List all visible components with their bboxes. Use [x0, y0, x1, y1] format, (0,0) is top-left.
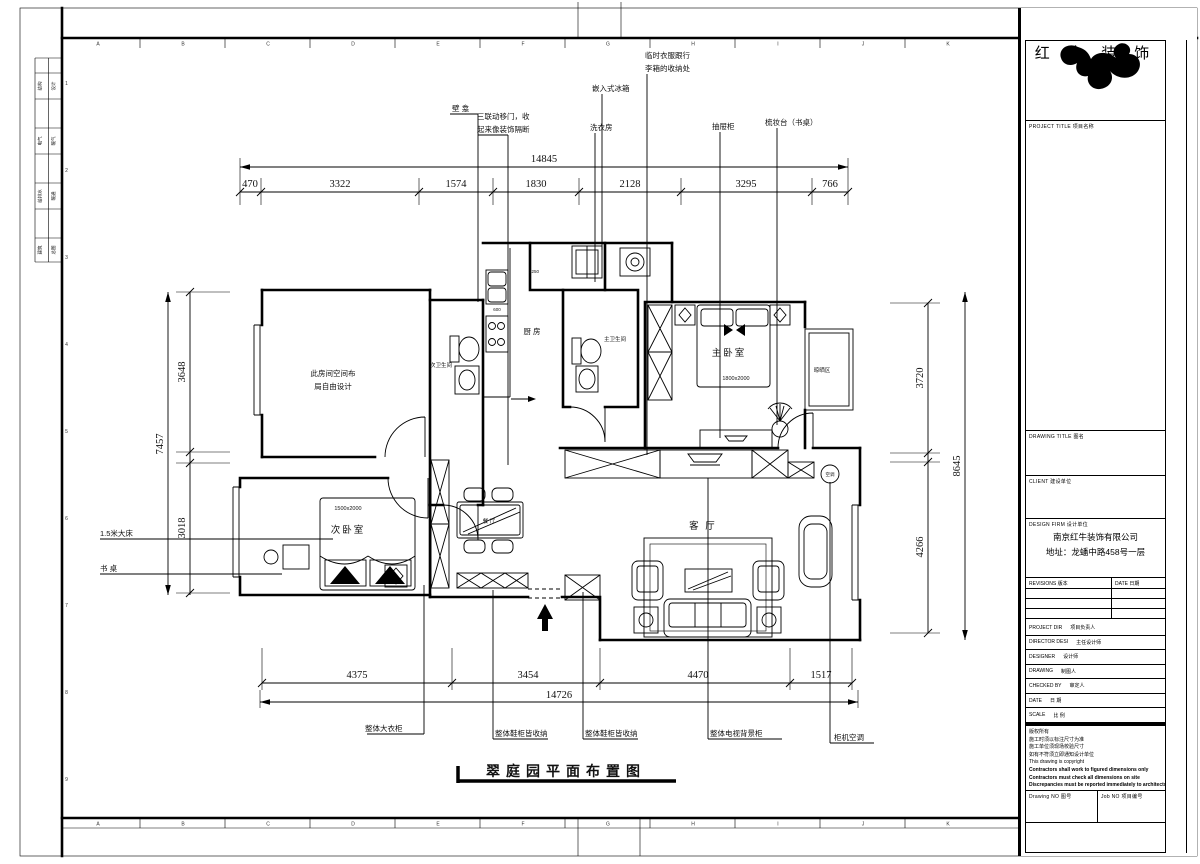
job-no-label: Job NO 项目编号: [1098, 791, 1165, 822]
staff-row: SCALE比 例: [1026, 708, 1165, 723]
svg-text:客 厅: 客 厅: [689, 520, 717, 532]
svg-text:设计: 设计: [50, 81, 57, 90]
svg-text:4375: 4375: [347, 670, 368, 681]
logo-section: 红 牛 装 饰: [1026, 41, 1165, 121]
svg-text:局自由设计: 局自由设计: [314, 381, 352, 391]
svg-text:1574: 1574: [446, 179, 468, 190]
svg-text:整体鞋柜皆收纳: 整体鞋柜皆收纳: [495, 728, 548, 738]
copyright-line: 版权所有: [1029, 729, 1165, 737]
svg-text:7: 7: [65, 603, 68, 609]
svg-text:梳妆台（书桌）: 梳妆台（书桌）: [765, 117, 818, 127]
svg-text:E: E: [436, 42, 440, 48]
svg-text:李箱的收纳处: 李箱的收纳处: [645, 63, 690, 73]
svg-text:此房间空间布: 此房间空间布: [311, 368, 356, 378]
svg-text:厨 房: 厨 房: [523, 326, 540, 336]
rednow-bull-logo: [1026, 41, 1165, 97]
svg-text:7457: 7457: [155, 434, 166, 455]
design-firm-name: 南京红牛装饰有限公司: [1026, 531, 1165, 543]
svg-text:I: I: [777, 822, 778, 828]
svg-text:H: H: [691, 822, 695, 828]
copyright-line: 施工单位须现场校验尺寸: [1029, 744, 1165, 752]
staff-section: PROJECT DIR项目负责人 DIRECTOR DESI主任设计师 DESI…: [1026, 621, 1165, 723]
svg-text:F: F: [521, 822, 524, 828]
living-room-furniture: [632, 465, 839, 637]
svg-text:470: 470: [242, 179, 258, 190]
svg-text:壁 龛: 壁 龛: [452, 103, 470, 113]
drawing-sheet: A B C D E F G H I J K A B C D E F G H I …: [0, 0, 1200, 864]
project-title-section: PROJECT TITLE 项目名称: [1026, 121, 1165, 431]
staff-row: CHECKED BY审定人: [1026, 679, 1165, 694]
svg-text:C: C: [266, 822, 270, 828]
svg-text:翠庭园平面布置图: 翠庭园平面布置图: [486, 763, 646, 779]
svg-text:E: E: [436, 822, 440, 828]
svg-text:起来像装饰隔断: 起来像装饰隔断: [477, 124, 530, 134]
svg-text:3720: 3720: [915, 368, 926, 389]
svg-text:3648: 3648: [177, 362, 188, 383]
svg-text:次卧室: 次卧室: [331, 524, 366, 536]
svg-text:8645: 8645: [952, 456, 963, 477]
svg-text:D: D: [351, 42, 355, 48]
staff-row: DIRECTOR DESI主任设计师: [1026, 636, 1165, 651]
design-firm-section: DESIGN FIRM 设计单位 南京红牛装饰有限公司 地址：龙蟠中路458号一…: [1026, 519, 1165, 578]
title-block-inner: 红 牛 装 饰 PROJECT TITLE 项目名称 DRAWING TITLE…: [1025, 40, 1166, 853]
svg-text:14845: 14845: [531, 154, 557, 165]
svg-text:给排水: 给排水: [37, 189, 44, 203]
svg-text:3018: 3018: [177, 518, 188, 539]
svg-text:K: K: [946, 42, 950, 48]
svg-text:3295: 3295: [736, 179, 757, 190]
copyright-line: 如有不符须立即通知设计单位: [1029, 752, 1165, 760]
margin-signature-boxes: 结构 设计 电气 暖气 给排水 暖通 建筑 总图: [35, 58, 62, 262]
title-block-divider-2: [1186, 40, 1187, 853]
svg-text:2: 2: [65, 168, 68, 174]
svg-text:书 桌: 书 桌: [100, 563, 118, 573]
grid-letters-top: A B C D E F G H I J K: [96, 42, 950, 48]
svg-text:晾晒区: 晾晒区: [814, 366, 831, 374]
copyright-line: Contractors shall work to figured dimens…: [1029, 767, 1165, 775]
copyright-line: Contractors must check all dimensions on…: [1029, 775, 1165, 783]
svg-text:4: 4: [65, 342, 68, 348]
svg-text:电气: 电气: [37, 136, 43, 145]
svg-text:主卫生间: 主卫生间: [604, 335, 626, 343]
svg-text:1: 1: [65, 81, 68, 87]
svg-text:1.5米大床: 1.5米大床: [100, 528, 133, 538]
svg-text:G: G: [606, 42, 610, 48]
svg-text:766: 766: [822, 179, 838, 190]
svg-text:6: 6: [65, 516, 68, 522]
svg-text:H: H: [691, 42, 695, 48]
svg-text:整体大衣柜: 整体大衣柜: [365, 723, 403, 733]
svg-text:1800x2000: 1800x2000: [722, 376, 749, 382]
grid-letters-bottom: A B C D E F G H I J K: [96, 822, 950, 828]
svg-text:建筑: 建筑: [37, 245, 44, 254]
svg-text:9: 9: [65, 777, 68, 783]
svg-text:1830: 1830: [526, 179, 547, 190]
svg-text:4266: 4266: [915, 537, 926, 558]
title-block: 红 牛 装 饰 PROJECT TITLE 项目名称 DRAWING TITLE…: [1018, 8, 1197, 856]
svg-text:3: 3: [65, 255, 68, 261]
staff-row: DESIGNER设计师: [1026, 650, 1165, 665]
svg-text:14726: 14726: [546, 690, 572, 701]
svg-text:空调: 空调: [826, 471, 835, 478]
svg-text:结构: 结构: [37, 81, 44, 90]
svg-text:3322: 3322: [330, 179, 351, 190]
svg-text:整体鞋柜皆收纳: 整体鞋柜皆收纳: [585, 728, 638, 738]
copyright-section: 版权所有 施工时须以标注尺寸为准 施工单位须现场校验尺寸 如有不符须立即通知设计…: [1026, 726, 1165, 791]
project-title-label: PROJECT TITLE 项目名称: [1026, 121, 1165, 130]
svg-text:1517: 1517: [811, 670, 832, 681]
svg-text:洗衣房: 洗衣房: [590, 122, 613, 132]
svg-text:餐 厅: 餐 厅: [483, 517, 496, 525]
staff-row: DRAWING制图人: [1026, 665, 1165, 680]
svg-text:J: J: [862, 42, 865, 48]
svg-text:8: 8: [65, 690, 68, 696]
svg-text:主卧室: 主卧室: [712, 347, 747, 359]
svg-text:3454: 3454: [518, 670, 540, 681]
plan-title: 翠庭园平面布置图: [458, 763, 676, 783]
svg-text:600: 600: [493, 307, 501, 312]
svg-text:1500x2000: 1500x2000: [334, 506, 361, 512]
svg-text:I: I: [777, 42, 778, 48]
drawing-no-label: Drawing NO 图号: [1026, 791, 1098, 822]
svg-text:K: K: [946, 822, 950, 828]
client-section: CLIENT 建设单位: [1026, 476, 1165, 519]
design-firm-label: DESIGN FIRM 设计单位: [1026, 519, 1165, 528]
svg-text:暖气: 暖气: [50, 136, 57, 145]
svg-text:A: A: [96, 42, 100, 48]
svg-text:B: B: [181, 42, 185, 48]
svg-text:总图: 总图: [50, 245, 57, 254]
entry: [528, 589, 562, 631]
svg-text:G: G: [606, 822, 610, 828]
svg-text:临时衣服跟行: 临时衣服跟行: [645, 50, 690, 60]
dimensions: 14845 470 3322 1574 1830 2128 3295 766 7…: [155, 154, 968, 708]
copyright-line: This drawing is copyright: [1029, 759, 1165, 767]
svg-text:暖通: 暖通: [50, 191, 57, 200]
cabinets: [431, 305, 814, 600]
drawing-title-label: DRAWING TITLE 图名: [1026, 431, 1165, 440]
svg-text:嵌入式冰箱: 嵌入式冰箱: [592, 83, 630, 93]
svg-text:B: B: [181, 822, 185, 828]
bathroom-fixtures: [450, 336, 601, 394]
entry-arrow: [537, 604, 553, 631]
svg-text:三联动移门，收: 三联动移门，收: [477, 111, 530, 121]
svg-text:整体电视背景柜: 整体电视背景柜: [710, 728, 763, 738]
svg-text:A: A: [96, 822, 100, 828]
design-firm-address: 地址：龙蟠中路458号一层: [1026, 546, 1165, 558]
revisions-section: REVISIONS 版本 DATE 日期: [1026, 578, 1165, 621]
svg-text:J: J: [862, 822, 865, 828]
client-label: CLIENT 建设单位: [1026, 476, 1165, 485]
drawing-title-section: DRAWING TITLE 图名: [1026, 431, 1165, 476]
svg-text:F: F: [521, 42, 524, 48]
svg-text:1250: 1250: [529, 269, 540, 274]
svg-text:抽屉柜: 抽屉柜: [712, 121, 735, 131]
staff-row: DATE日 期: [1026, 694, 1165, 709]
copyright-line: Discrepancies must be reported immediate…: [1029, 782, 1165, 790]
grid-numbers-left: 1 2 3 4 5 6 7 8 9: [65, 81, 68, 783]
staff-row: PROJECT DIR项目负责人: [1026, 621, 1165, 636]
svg-text:柜机空调: 柜机空调: [834, 732, 864, 742]
revisions-label: REVISIONS 版本: [1026, 578, 1112, 589]
svg-text:C: C: [266, 42, 270, 48]
svg-text:4470: 4470: [688, 670, 709, 681]
svg-text:次卫生间: 次卫生间: [430, 361, 452, 369]
svg-text:2128: 2128: [620, 179, 641, 190]
date-col-label: DATE 日期: [1112, 578, 1165, 589]
svg-text:D: D: [351, 822, 355, 828]
drawing-no-section: Drawing NO 图号 Job NO 项目编号: [1026, 791, 1165, 823]
svg-text:5: 5: [65, 429, 68, 435]
